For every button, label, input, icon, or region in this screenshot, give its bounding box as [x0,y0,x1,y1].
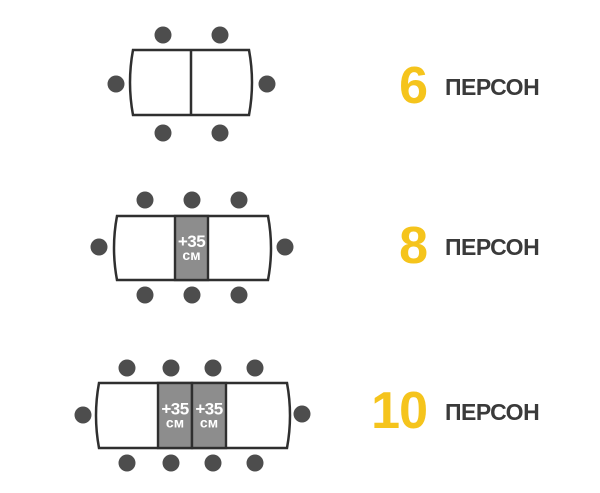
persons-word: ПЕРСОН [445,399,539,426]
persons-count: 8 [357,220,427,272]
persons-word: ПЕРСОН [445,74,539,101]
table-seating-capacity-diagram: +35см+35см+35см 6ПЕРСОН8ПЕРСОН10ПЕРСОН [0,0,600,493]
persons-count: 6 [357,60,427,112]
persons-word: ПЕРСОН [445,234,539,261]
capacity-labels-layer: 6ПЕРСОН8ПЕРСОН10ПЕРСОН [0,0,600,493]
capacity-label-8: 8ПЕРСОН [357,220,539,272]
persons-count: 10 [357,385,427,437]
capacity-label-10: 10ПЕРСОН [357,385,539,437]
capacity-label-6: 6ПЕРСОН [357,60,539,112]
